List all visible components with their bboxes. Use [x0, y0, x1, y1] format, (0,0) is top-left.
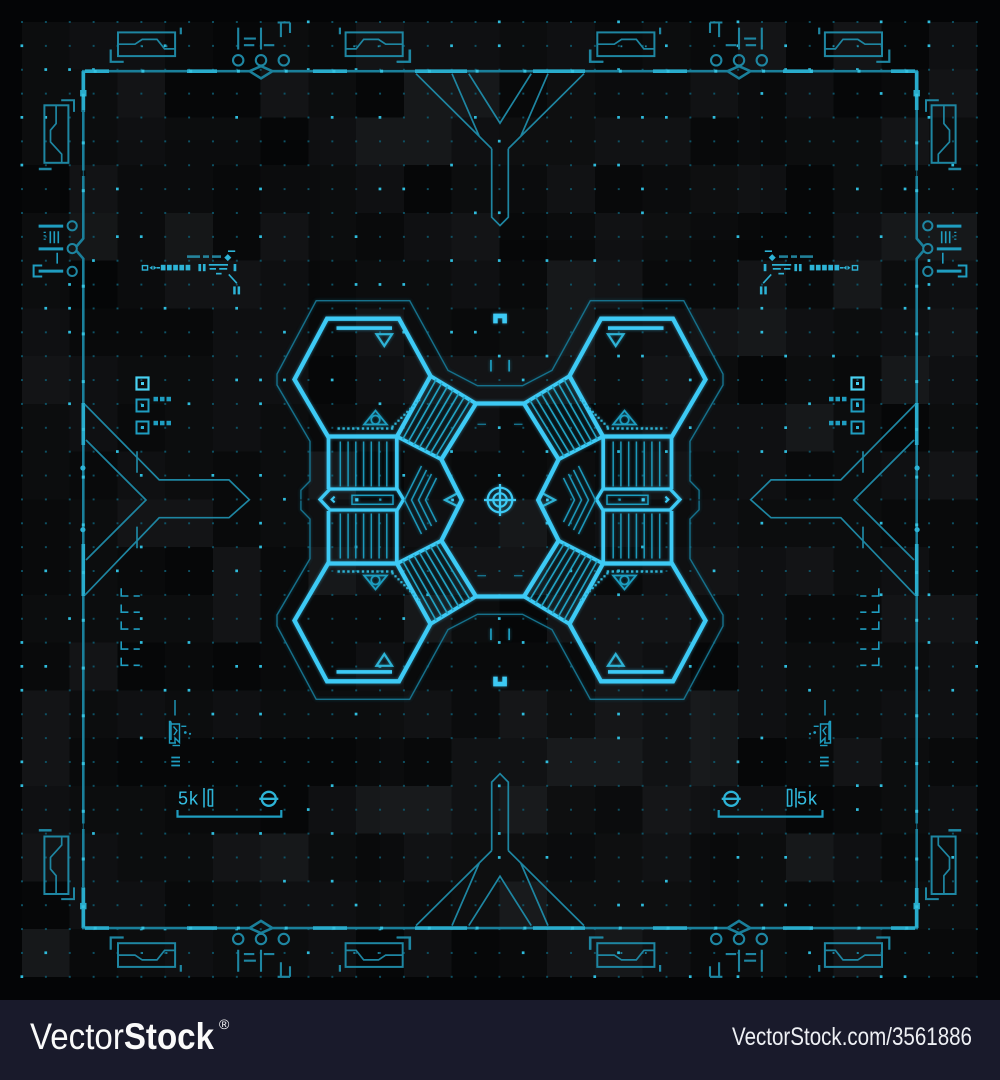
svg-text:VectorStock: VectorStock	[30, 1016, 214, 1057]
svg-text:VectorStock.com/3561886: VectorStock.com/3561886	[732, 1023, 972, 1051]
svg-text:®: ®	[219, 1016, 230, 1032]
svg-text:5k: 5k	[797, 789, 818, 809]
svg-text:5k: 5k	[178, 789, 199, 809]
